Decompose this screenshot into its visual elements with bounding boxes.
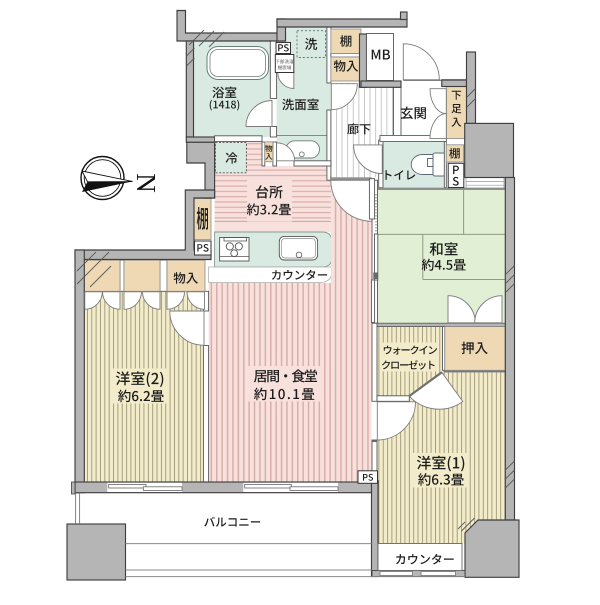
svg-text:N: N — [131, 173, 161, 193]
